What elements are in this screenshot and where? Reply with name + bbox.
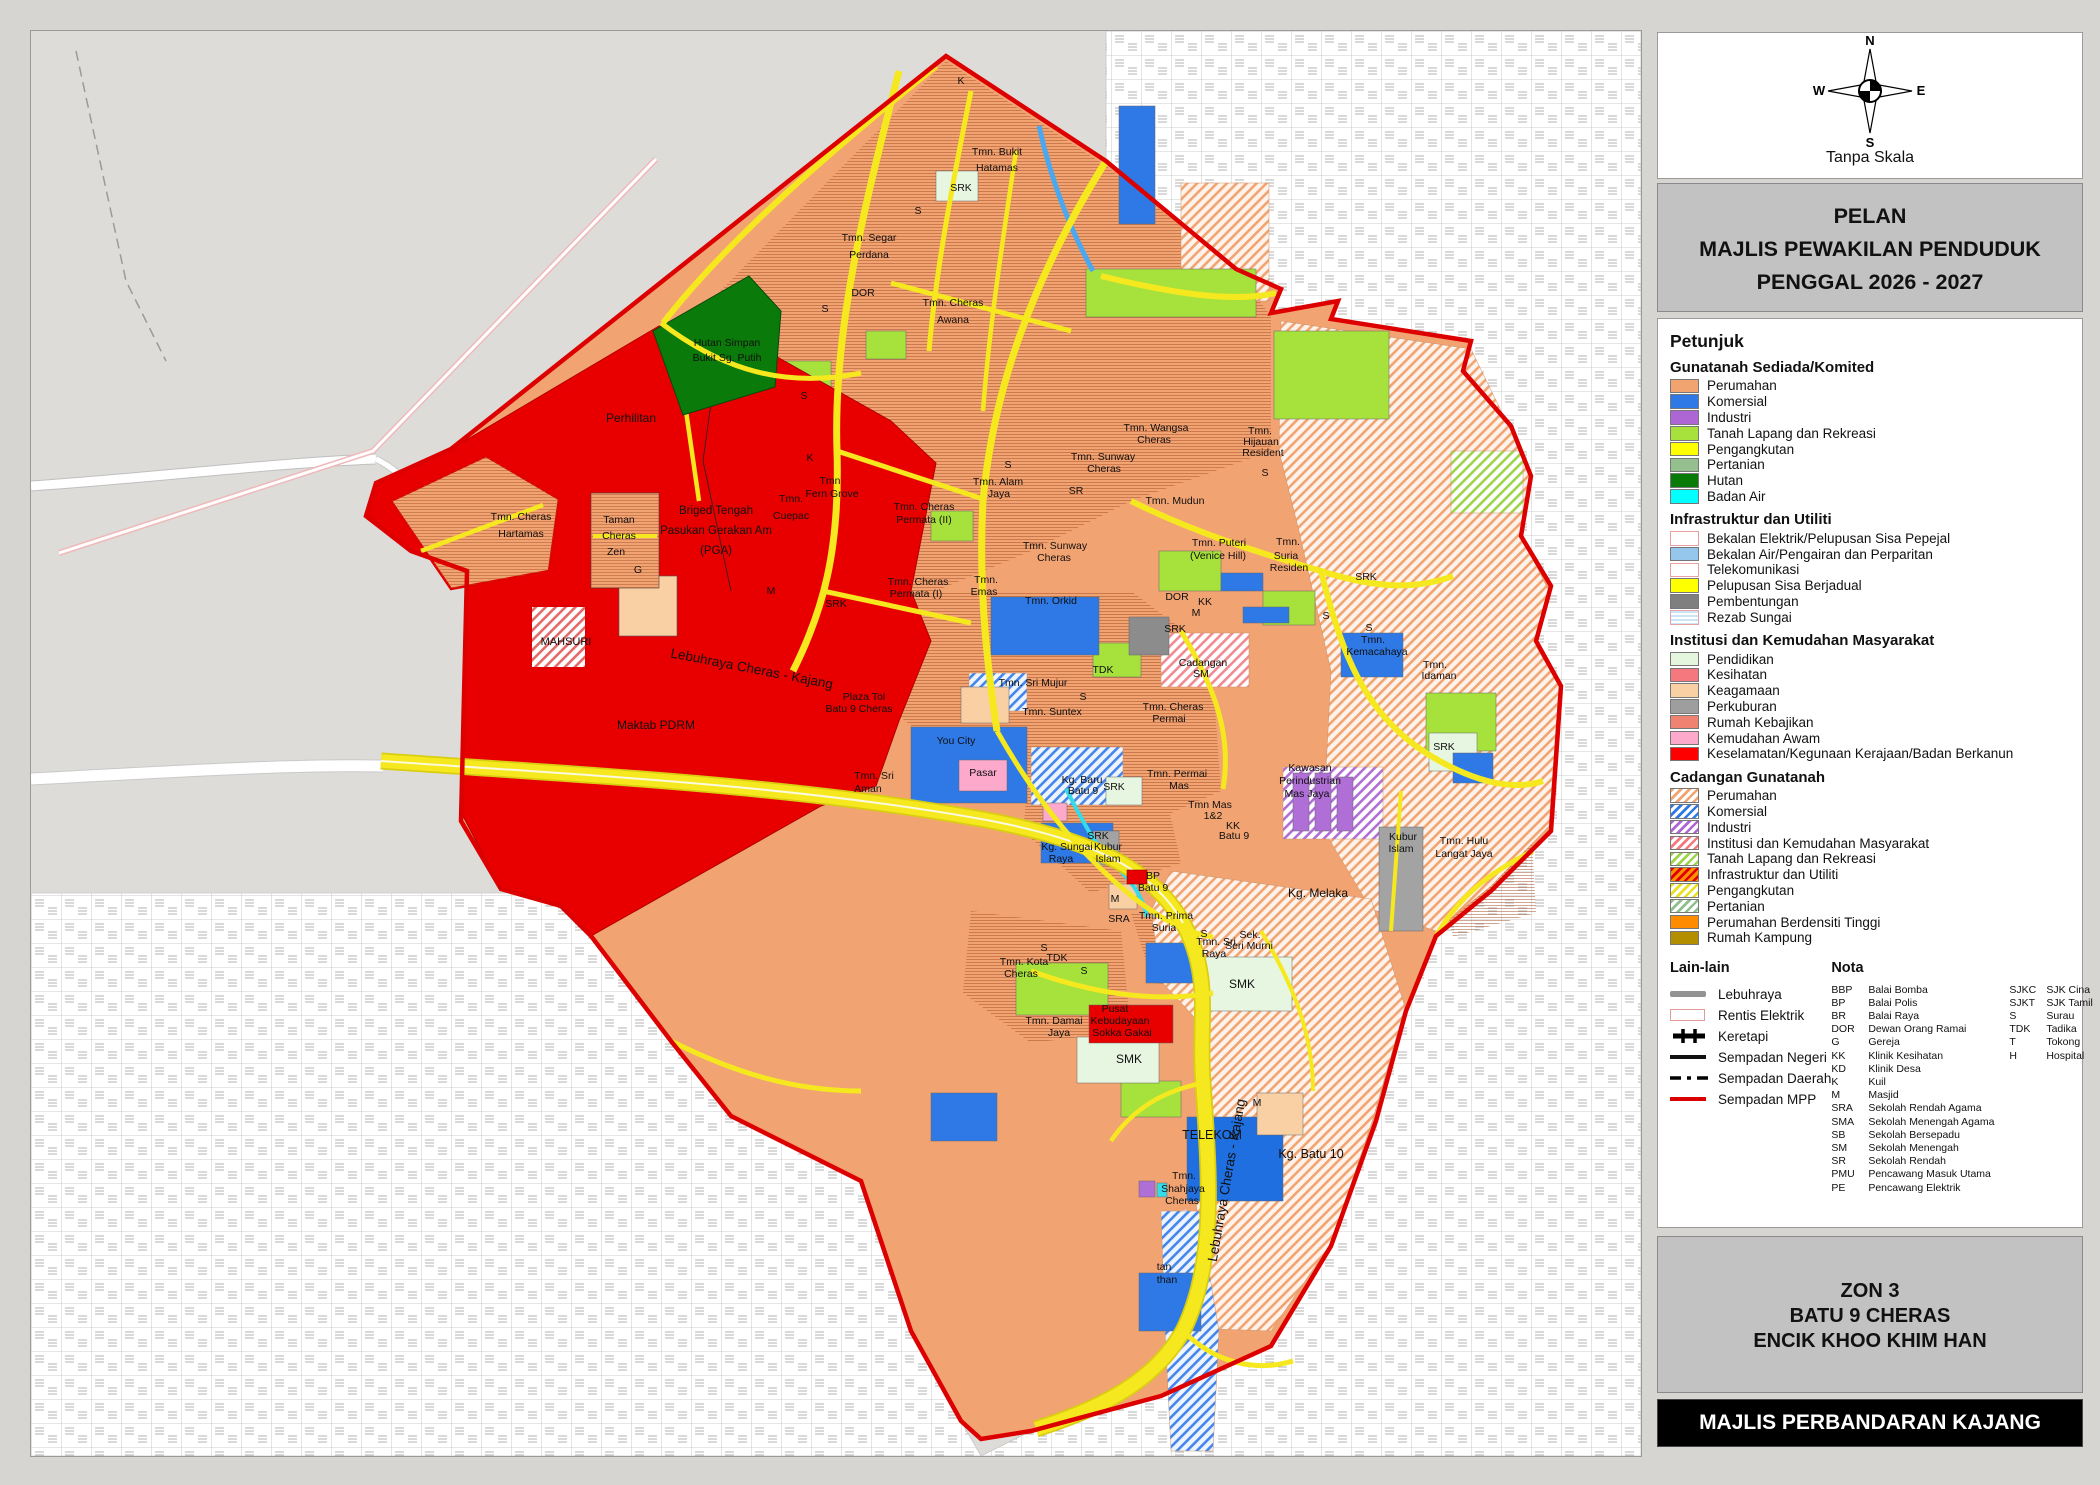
map-label: Awana: [937, 314, 969, 326]
map-label: Plaza Tol: [843, 691, 885, 703]
nota-desc: Pencawang Elektrik: [1868, 1182, 1960, 1195]
zone-representative: ENCIK KHOO KHIM HAN: [1658, 1329, 2082, 1354]
map-label: Emas: [971, 586, 998, 598]
map-label: SM: [1193, 668, 1209, 680]
map-label: MAHSURI: [541, 636, 592, 648]
lain-lain-label: Rentis Elektrik: [1718, 1008, 1804, 1023]
legend-item: Badan Air: [1670, 489, 2074, 505]
nota-item: SRASekolah Rendah Agama: [1831, 1102, 2009, 1115]
legend-section-heading: Cadangan Gunatanah: [1670, 769, 2074, 786]
legend-swatch: [1670, 610, 1699, 625]
legend-item: Tanah Lapang dan Rekreasi: [1670, 851, 2074, 867]
map-label: Resident: [1242, 447, 1284, 459]
lain-lain-label: Sempadan Daerah: [1718, 1071, 1831, 1086]
legend-swatch: [1670, 883, 1699, 898]
legend-swatch: [1670, 820, 1699, 835]
map-label: Suria: [1274, 550, 1299, 562]
map-label: Batu 9 Cheras: [825, 703, 892, 715]
nota-item: TTokong: [2009, 1036, 2093, 1049]
map-label: SRA: [1108, 913, 1130, 925]
mpp-symbol: [1670, 1097, 1718, 1101]
legend-section-heading: Gunatanah Sediada/Komited: [1670, 359, 2074, 376]
lain-lain-label: Sempadan MPP: [1718, 1092, 1816, 1107]
nota-desc: Balai Polis: [1868, 997, 1917, 1010]
legend-item-label: Industri: [1707, 410, 1751, 425]
legend-item: Pelupusan Sisa Berjadual: [1670, 578, 2074, 594]
lain-lain-item-rail: Keretapi: [1670, 1026, 1831, 1047]
legend-swatch: [1670, 473, 1699, 488]
legend-item: Pertanian: [1670, 898, 2074, 914]
nota-desc: Sekolah Bersepadu: [1868, 1129, 1960, 1142]
title-line-2: MAJLIS PEWAKILAN PENDUDUK: [1658, 233, 2082, 266]
legend-item: Hutan: [1670, 473, 2074, 489]
nota-desc: Sekolah Menengah Agama: [1868, 1116, 1994, 1129]
nota-abbr: H: [2009, 1050, 2046, 1063]
legend-item-label: Badan Air: [1707, 489, 1766, 504]
nota-item: DORDewan Orang Ramai: [1831, 1023, 2009, 1036]
nota-item: SJKCSJK Cina: [2009, 984, 2093, 997]
nota-abbr: PMU: [1831, 1168, 1868, 1181]
map-label: Hartamas: [498, 528, 544, 540]
legend-item: Telekomunikasi: [1670, 562, 2074, 578]
map-label: Islam: [1095, 853, 1120, 865]
map-label: Shahjaya: [1161, 1183, 1205, 1195]
legend-item-label: Bekalan Air/Pengairan dan Perparitan: [1707, 547, 1933, 562]
nota-desc: Tadika: [2046, 1023, 2076, 1036]
legend-swatch: [1670, 531, 1699, 546]
legend-item: Bekalan Elektrik/Pelupusan Sisa Pepejal: [1670, 530, 2074, 546]
map-label: M: [1253, 1097, 1262, 1109]
map-label: Kg. Melaka: [1288, 886, 1348, 900]
map-label: tan: [1157, 1261, 1172, 1273]
nota-desc: Gereja: [1868, 1036, 1900, 1049]
legend-item: Bekalan Air/Pengairan dan Perparitan: [1670, 546, 2074, 562]
map-label: Seri Murni: [1225, 940, 1273, 952]
map-label: M: [1111, 893, 1120, 905]
map-label: Perdana: [849, 249, 889, 261]
map-label: Langat Jaya: [1435, 848, 1492, 860]
map-area: KTmn. BukitHatamasSRKSTmn. SegarPerdanaD…: [30, 30, 1642, 1457]
map-label: Tmn. Sri Mujur: [999, 677, 1068, 689]
map-label: Tmn.: [779, 493, 803, 505]
nota-abbr: SM: [1831, 1142, 1868, 1155]
nota-heading: Nota: [1831, 960, 2093, 976]
map-label: You City: [937, 735, 976, 747]
lain-lain-item-highway: Lebuhraya: [1670, 984, 1831, 1005]
lain-lain-item-daerah: Sempadan Daerah: [1670, 1068, 1831, 1089]
nota-desc: Balai Bomba: [1868, 984, 1928, 997]
map-label: Tmn. Cheras: [894, 501, 955, 513]
map-label: Cheras: [1165, 1195, 1199, 1207]
nota-item: SBSekolah Bersepadu: [1831, 1129, 2009, 1142]
map-label: SMK: [1116, 1052, 1142, 1066]
highway-symbol: [1670, 991, 1718, 997]
map-label: SR: [1069, 485, 1084, 497]
map-label: Raya: [1049, 853, 1074, 865]
legend-item: Rumah Kampung: [1670, 930, 2074, 946]
legend-item-label: Rumah Kampung: [1707, 930, 1812, 945]
legend-item-label: Kesihatan: [1707, 667, 1767, 682]
nota-abbr: KD: [1831, 1063, 1868, 1076]
legend-item-label: Pertanian: [1707, 457, 1765, 472]
map-label: Cheras: [1087, 463, 1121, 475]
map-label: DOR: [851, 287, 875, 299]
nota-desc: Pencawang Masuk Utama: [1868, 1168, 1991, 1181]
nota-desc: Balai Raya: [1868, 1010, 1919, 1023]
legend-swatch: [1670, 410, 1699, 425]
map-label: Mas Jaya: [1285, 788, 1330, 800]
rentis-symbol: [1670, 1009, 1718, 1021]
nota-desc: Masjid: [1868, 1089, 1898, 1102]
map-label: Tmn. Cheras: [888, 576, 949, 588]
legend-item: Industri: [1670, 819, 2074, 835]
legend-swatch: [1670, 394, 1699, 409]
nota-abbr: SJKT: [2009, 997, 2046, 1010]
nota-abbr: KK: [1831, 1050, 1868, 1063]
map-label: S: [1080, 965, 1087, 977]
legend-item-label: Perumahan: [1707, 378, 1777, 393]
legend-item: Pertanian: [1670, 457, 2074, 473]
legend-swatch: [1670, 426, 1699, 441]
nota-desc: Klinik Desa: [1868, 1063, 1921, 1076]
plan-sheet: { "panel": { "compass": {"n":"N","s":"S"…: [0, 0, 2100, 1485]
map-label: Kubur: [1094, 841, 1123, 853]
legend-item: Pengangkutan: [1670, 441, 2074, 457]
map-label: Batu 9: [1219, 830, 1250, 842]
legend-item: Infrastruktur dan Utiliti: [1670, 867, 2074, 883]
legend-item: Perkuburan: [1670, 699, 2074, 715]
map-label: Kawasan: [1288, 762, 1331, 774]
map-label: Tmn. Alam: [973, 476, 1023, 488]
legend-item-label: Infrastruktur dan Utiliti: [1707, 867, 1838, 882]
nota-desc: Dewan Orang Ramai: [1868, 1023, 1966, 1036]
legend-title: Petunjuk: [1670, 331, 2074, 352]
legend-item: Perumahan: [1670, 788, 2074, 804]
legend-swatch: [1670, 489, 1699, 504]
map-label: Maktab PDRM: [617, 718, 695, 732]
compass-box: N E S W Tanpa Skala: [1657, 32, 2083, 179]
map-label: Tmn. Segar: [842, 232, 897, 244]
legend-swatch: [1670, 836, 1699, 851]
map-label: S: [1322, 610, 1329, 622]
map-label: (PGA): [700, 545, 732, 557]
legend-item: Rezab Sungai: [1670, 609, 2074, 625]
nota-section: Nota BBPBalai BombaBPBalai PolisBRBalai …: [1831, 960, 2093, 1195]
lain-lain-label: Sempadan Negeri: [1718, 1050, 1827, 1065]
nota-abbr: TDK: [2009, 1023, 2046, 1036]
map-label: Zen: [607, 546, 625, 558]
map-label: DOR: [1165, 591, 1189, 603]
nota-abbr: SR: [1831, 1155, 1868, 1168]
nota-desc: Hospital: [2046, 1050, 2084, 1063]
nota-abbr: S: [2009, 1010, 2046, 1023]
nota-desc: Sekolah Menengah: [1868, 1142, 1959, 1155]
map-label: Tmn. Kota: [1000, 956, 1049, 968]
nota-desc: SJK Tamil: [2046, 997, 2093, 1010]
legend-item-label: Industri: [1707, 820, 1751, 835]
legend-item-label: Pelupusan Sisa Berjadual: [1707, 578, 1862, 593]
lain-lain-label: Lebuhraya: [1718, 987, 1782, 1002]
map-label: SRK: [1103, 781, 1125, 793]
map-label: Briged Tengah: [679, 505, 753, 517]
negeri-symbol: [1670, 1055, 1718, 1059]
map-label: M: [1192, 607, 1201, 619]
nota-item: KKKlinik Kesihatan: [1831, 1050, 2009, 1063]
map-label: Cuepac: [773, 510, 809, 522]
legend-item: Kemudahan Awam: [1670, 730, 2074, 746]
nota-abbr: SRA: [1831, 1102, 1868, 1115]
legend-item-label: Tanah Lapang dan Rekreasi: [1707, 851, 1876, 866]
legend-item-label: Rumah Kebajikan: [1707, 715, 1814, 730]
map-label: Islam: [1388, 843, 1413, 855]
map-label: SRK: [1433, 741, 1455, 753]
map-label: Tmn. Prima: [1139, 910, 1193, 922]
map-label: Tmn.: [1361, 634, 1385, 646]
map-label: Cheras: [1137, 434, 1171, 446]
map-label: SRK: [950, 182, 972, 194]
map-label: Batu 9: [1138, 882, 1169, 894]
legend-swatch: [1670, 594, 1699, 609]
nota-abbr: K: [1831, 1076, 1868, 1089]
lain-lain-heading: Lain-lain: [1670, 960, 1831, 976]
legend-swatch: [1670, 715, 1699, 730]
compass-w: W: [1813, 83, 1826, 98]
map-label: SMK: [1229, 977, 1255, 991]
legend-item-label: Pengangkutan: [1707, 883, 1794, 898]
legend-item: Komersial: [1670, 394, 2074, 410]
map-label: SRK: [1164, 623, 1186, 635]
map-label: Cheras: [1004, 968, 1038, 980]
legend-swatch: [1670, 788, 1699, 803]
legend-item: Institusi dan Kemudahan Masyarakat: [1670, 835, 2074, 851]
legend-section-heading: Infrastruktur dan Utiliti: [1670, 511, 2074, 528]
map-label: S: [1365, 622, 1372, 634]
nota-abbr: G: [1831, 1036, 1868, 1049]
map-label: Tmn.: [974, 574, 998, 586]
nota-abbr: BP: [1831, 997, 1868, 1010]
nota-abbr: SMA: [1831, 1116, 1868, 1129]
map-label: Suria: [1152, 922, 1177, 934]
legend-swatch: [1670, 442, 1699, 457]
map-label: Permata (II): [896, 514, 951, 526]
legend-swatch: [1670, 852, 1699, 867]
legend-swatch: [1670, 915, 1699, 930]
map-label: Tmn. Sri: [854, 770, 894, 782]
legend-item: Rumah Kebajikan: [1670, 714, 2074, 730]
legend-item-label: Pengangkutan: [1707, 442, 1794, 457]
legend-item: Kesihatan: [1670, 667, 2074, 683]
lain-lain-item-rentis: Rentis Elektrik: [1670, 1005, 1831, 1026]
zone-name: BATU 9 CHERAS: [1658, 1304, 2082, 1329]
map-label: Kubur: [1389, 831, 1418, 843]
map-label: S: [821, 303, 828, 315]
map-label: Permata (I): [890, 588, 943, 600]
nota-desc: Klinik Kesihatan: [1868, 1050, 1943, 1063]
legend-box: Petunjuk Gunatanah Sediada/KomitedPeruma…: [1657, 318, 2083, 1228]
legend-swatch: [1670, 931, 1699, 946]
zone-info-box: ZON 3 BATU 9 CHERAS ENCIK KHOO KHIM HAN: [1657, 1236, 2083, 1393]
map-label: Tmn. Sunway: [1023, 540, 1088, 552]
legend-swatch: [1670, 379, 1699, 394]
nota-abbr: SJKC: [2009, 984, 2046, 997]
legend-item: Pembentungan: [1670, 594, 2074, 610]
legend-item: Perumahan: [1670, 378, 2074, 394]
nota-abbr: BR: [1831, 1010, 1868, 1023]
legend-swatch: [1670, 458, 1699, 473]
nota-item: BRBalai Raya: [1831, 1010, 2009, 1023]
legend-item-label: Perumahan: [1707, 788, 1777, 803]
map-label: Bukit Sg. Putih: [693, 352, 762, 364]
title-line-3: PENGGAL 2026 - 2027: [1658, 266, 2082, 299]
map-label: SRK: [825, 598, 847, 610]
map-label: Tmn. Puteri: [1192, 537, 1246, 549]
map-label: Cheras: [1037, 552, 1071, 564]
legend-item: Keselamatan/Kegunaan Kerajaan/Badan Berk…: [1670, 746, 2074, 762]
map-label: Tmn. Sunway: [1071, 451, 1136, 463]
map-label: Tmn. Bukit: [972, 146, 1022, 158]
map-label: Residen: [1270, 562, 1309, 574]
map-label: S: [1261, 467, 1268, 479]
map-label: TDK: [1047, 952, 1068, 964]
nota-abbr: SB: [1831, 1129, 1868, 1142]
map-label: Tmn.: [1276, 536, 1300, 548]
legend-swatch: [1670, 699, 1699, 714]
map-label: Idaman: [1421, 670, 1456, 682]
nota-desc: Kuil: [1868, 1076, 1886, 1089]
lain-lain-section: Lain-lain LebuhrayaRentis ElektrikKereta…: [1670, 960, 1831, 1195]
nota-item: BPBalai Polis: [1831, 997, 2009, 1010]
map-label: Tmn.: [1172, 1170, 1196, 1182]
map-label: (Venice Hill): [1190, 550, 1246, 562]
map-label: M: [767, 585, 776, 597]
map-label: Tmn. Cheras: [923, 297, 984, 309]
map-label: K: [957, 75, 964, 87]
map-label: Kg. Batu 10: [1278, 1147, 1343, 1161]
map-label: Raya: [1202, 948, 1227, 960]
nota-desc: Surau: [2046, 1010, 2074, 1023]
daerah-symbol: [1670, 1075, 1718, 1081]
legend-swatch: [1670, 731, 1699, 746]
legend-item-label: Hutan: [1707, 473, 1743, 488]
map-label: Hatamas: [976, 162, 1018, 174]
legend-item-label: Perkuburan: [1707, 699, 1777, 714]
map-label: SRK: [1355, 571, 1377, 583]
compass-n: N: [1865, 33, 1874, 48]
map-label: Cheras: [602, 530, 636, 542]
map-label: S: [1079, 691, 1086, 703]
map-label: Jaya: [988, 488, 1010, 500]
map-label: Fern Grove: [805, 488, 858, 500]
legend-swatch: [1670, 804, 1699, 819]
nota-item: SSurau: [2009, 1010, 2093, 1023]
legend-item: Tanah Lapang dan Rekreasi: [1670, 425, 2074, 441]
legend-item-label: Bekalan Elektrik/Pelupusan Sisa Pepejal: [1707, 531, 1950, 546]
nota-abbr: T: [2009, 1036, 2046, 1049]
nota-desc: Sekolah Rendah Agama: [1868, 1102, 1981, 1115]
legend-sections: Gunatanah Sediada/KomitedPerumahanKomers…: [1670, 359, 2074, 946]
rail-symbol: [1670, 1028, 1718, 1044]
map-label: Taman: [603, 514, 635, 526]
lain-lain-item-mpp: Sempadan MPP: [1670, 1089, 1831, 1110]
map-label: Kebudayaan: [1091, 1015, 1150, 1027]
nota-item: SMASekolah Menengah Agama: [1831, 1116, 2009, 1129]
map-label: S: [914, 205, 921, 217]
legend-item: Perumahan Berdensiti Tinggi: [1670, 914, 2074, 930]
map-label: Tmn: [820, 475, 841, 487]
map-label: Pasukan Gerakan Am: [660, 525, 772, 537]
title-box: PELAN MAJLIS PEWAKILAN PENDUDUK PENGGAL …: [1657, 183, 2083, 312]
map-label: Tmn. Cheras: [1143, 701, 1204, 713]
compass-s: S: [1866, 135, 1875, 150]
map-label: Perindustrian: [1279, 775, 1341, 787]
nota-item: SRSekolah Rendah: [1831, 1155, 2009, 1168]
legend-item-label: Pendidikan: [1707, 652, 1774, 667]
map-label: Tmn. Mudun: [1146, 495, 1205, 507]
map-label: Hutan Simpan: [694, 337, 761, 349]
nota-item: PMUPencawang Masuk Utama: [1831, 1168, 2009, 1181]
legend-swatch: [1670, 547, 1699, 562]
legend-swatch: [1670, 683, 1699, 698]
legend-section-heading: Institusi dan Kemudahan Masyarakat: [1670, 632, 2074, 649]
legend-item-label: Komersial: [1707, 394, 1767, 409]
nota-item: SMSekolah Menengah: [1831, 1142, 2009, 1155]
zoning-map: KTmn. BukitHatamasSRKSTmn. SegarPerdanaD…: [31, 31, 1641, 1456]
legend-swatch: [1670, 747, 1699, 762]
nota-item: HHospital: [2009, 1050, 2093, 1063]
nota-desc: Tokong: [2046, 1036, 2080, 1049]
legend-item-label: Tanah Lapang dan Rekreasi: [1707, 426, 1876, 441]
nota-item: BBPBalai Bomba: [1831, 984, 2009, 997]
map-label: Batu 9: [1068, 785, 1099, 797]
legend-item-label: Keselamatan/Kegunaan Kerajaan/Badan Berk…: [1707, 746, 2013, 761]
map-label: S: [800, 390, 807, 402]
legend-item-label: Telekomunikasi: [1707, 562, 1799, 577]
zone-number: ZON 3: [1658, 1279, 2082, 1304]
legend-swatch: [1670, 563, 1699, 578]
legend-swatch: [1670, 652, 1699, 667]
nota-item: MMasjid: [1831, 1089, 2009, 1102]
legend-item-label: Pertanian: [1707, 899, 1765, 914]
nota-item: KDKlinik Desa: [1831, 1063, 2009, 1076]
map-label: than: [1157, 1274, 1178, 1286]
legend-item-label: Kemudahan Awam: [1707, 731, 1820, 746]
legend-item-label: Pembentungan: [1707, 594, 1799, 609]
scale-note: Tanpa Skala: [1658, 149, 2082, 167]
legend-item-label: Komersial: [1707, 804, 1767, 819]
map-label: Tmn. Damai: [1025, 1015, 1082, 1027]
legend-swatch: [1670, 867, 1699, 882]
nota-abbr: PE: [1831, 1182, 1868, 1195]
nota-item: TDKTadika: [2009, 1023, 2093, 1036]
map-label: TDK: [1093, 664, 1114, 676]
map-label: Pusat: [1102, 1003, 1129, 1015]
nota-item: PEPencawang Elektrik: [1831, 1182, 2009, 1195]
legend-item: Komersial: [1670, 804, 2074, 820]
map-label: Permai: [1152, 713, 1185, 725]
map-label: K: [806, 452, 813, 464]
nota-item: GGereja: [1831, 1036, 2009, 1049]
map-label: Tmn. Hulu: [1440, 835, 1489, 847]
map-label: 1&2: [1204, 810, 1223, 822]
legend-item-label: Perumahan Berdensiti Tinggi: [1707, 915, 1880, 930]
legend-item: Keagamaan: [1670, 683, 2074, 699]
legend-item-label: Rezab Sungai: [1707, 610, 1792, 625]
nota-abbr: BBP: [1831, 984, 1868, 997]
authority-banner: MAJLIS PERBANDARAN KAJANG: [1657, 1399, 2083, 1447]
map-label: Sokka Gakai: [1092, 1027, 1152, 1039]
legend-item: Pendidikan: [1670, 651, 2074, 667]
legend-swatch: [1670, 899, 1699, 914]
